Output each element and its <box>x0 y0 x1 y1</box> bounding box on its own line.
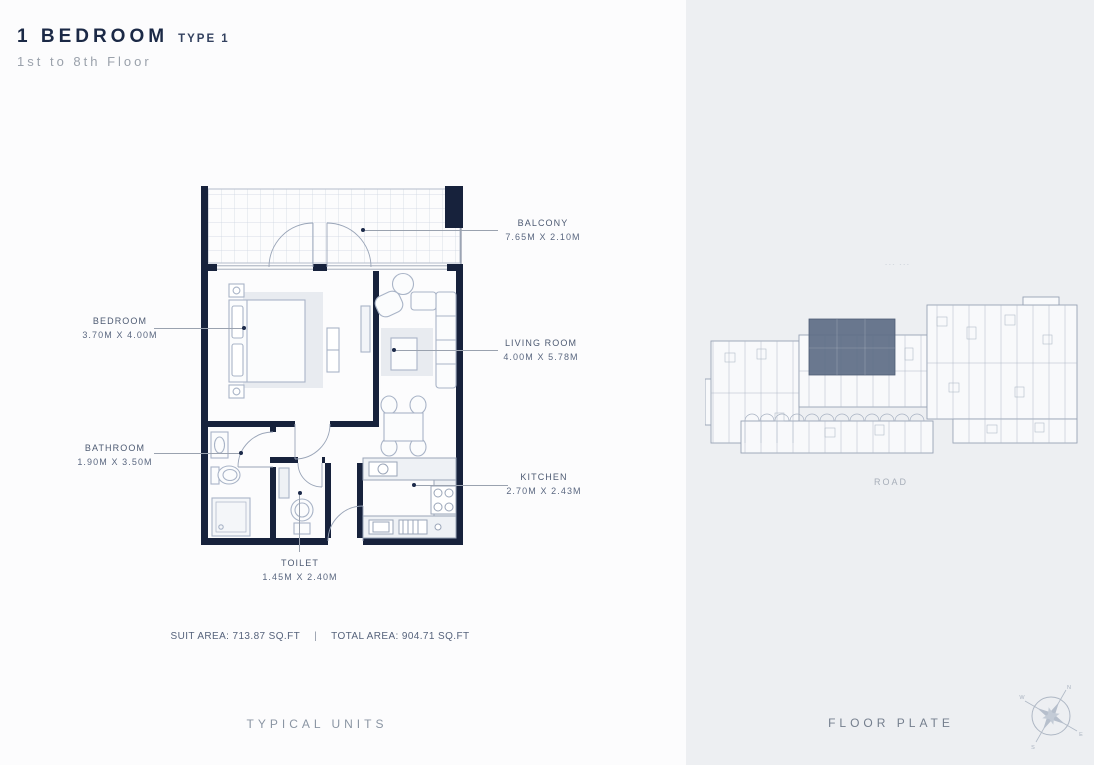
highlighted-unit <box>809 319 895 375</box>
unit-type-variant: TYPE 1 <box>178 33 230 45</box>
balcony-tile-floor <box>208 189 460 263</box>
bathroom-label: BATHROOM 1.90M X 3.50M <box>55 441 175 470</box>
balcony-leader-line <box>365 230 498 231</box>
slider-sills <box>217 266 447 269</box>
dining-chair-symbol <box>381 396 397 414</box>
living-room-leader-dot <box>392 348 396 352</box>
living-room-leader-line <box>396 350 498 351</box>
plate-tick-marks: --- --- <box>868 262 928 268</box>
kitchen-room <box>363 458 456 538</box>
toilet-leader-dot <box>298 491 302 495</box>
total-area-value: TOTAL AREA: 904.71 SQ.FT <box>331 631 469 642</box>
balcony-label: BALCONY 7.65M X 2.10M <box>483 216 603 245</box>
area-separator: | <box>300 631 331 642</box>
balcony-leader-dot <box>361 228 365 232</box>
living-room <box>373 274 456 389</box>
page-root: 1 BEDROOM TYPE 1 1st to 8th Floor <box>0 0 1094 765</box>
nightstand-symbol <box>229 284 244 297</box>
compass-east: E <box>1079 732 1083 738</box>
area-summary: SUIT AREA: 713.87 SQ.FT|TOTAL AREA: 904.… <box>140 631 500 642</box>
bedroom-leader-line <box>154 328 244 329</box>
wc-base-symbol <box>294 523 310 534</box>
bathroom-leader-dot <box>239 451 243 455</box>
toilet-shelf-symbol <box>279 468 289 498</box>
road-label: ROAD <box>841 477 941 487</box>
unit-type-title: 1 BEDROOM <box>17 26 168 48</box>
toilet-leader-line <box>299 495 300 552</box>
floor-range-subtitle: 1st to 8th Floor <box>17 54 152 69</box>
bedroom-room <box>229 284 370 398</box>
floor-plate-drawing <box>705 293 1085 473</box>
living-room-label: LIVING ROOM 4.00M X 5.78M <box>481 336 601 365</box>
typical-units-label: TYPICAL UNITS <box>187 717 447 731</box>
wc-bowl-symbol <box>291 499 313 521</box>
sofa-chaise-symbol <box>411 292 436 310</box>
dining-table-symbol <box>384 413 423 441</box>
toilet-room <box>279 468 313 534</box>
compass-west: W <box>1019 695 1025 701</box>
nightstand-symbol <box>229 385 244 398</box>
compass-star-minor <box>1042 707 1059 724</box>
compass-icon: N E S W <box>1018 680 1088 756</box>
coffee-table-symbol <box>391 338 417 370</box>
bedroom-leader-dot <box>242 326 246 330</box>
dining-area <box>381 396 426 456</box>
kitchen-leader-dot <box>412 483 416 487</box>
bathroom-sink-symbol <box>211 432 228 458</box>
unit-floorplan-drawing <box>195 180 475 556</box>
compass-north: N <box>1067 685 1071 691</box>
dresser-symbol <box>361 306 370 352</box>
floor-plate-label: FLOOR PLATE <box>761 716 1021 730</box>
shower-symbol <box>212 498 250 536</box>
page-title: 1 BEDROOM TYPE 1 <box>17 26 230 48</box>
balcony-room <box>208 189 461 264</box>
dining-chair-symbol <box>410 396 426 414</box>
suit-area-value: SUIT AREA: 713.87 SQ.FT <box>171 631 301 642</box>
toilet-label: TOILET 1.45M X 2.40M <box>240 556 360 585</box>
kitchen-leader-line <box>416 485 508 486</box>
compass-south: S <box>1031 745 1035 751</box>
bathroom-leader-line <box>154 453 241 454</box>
